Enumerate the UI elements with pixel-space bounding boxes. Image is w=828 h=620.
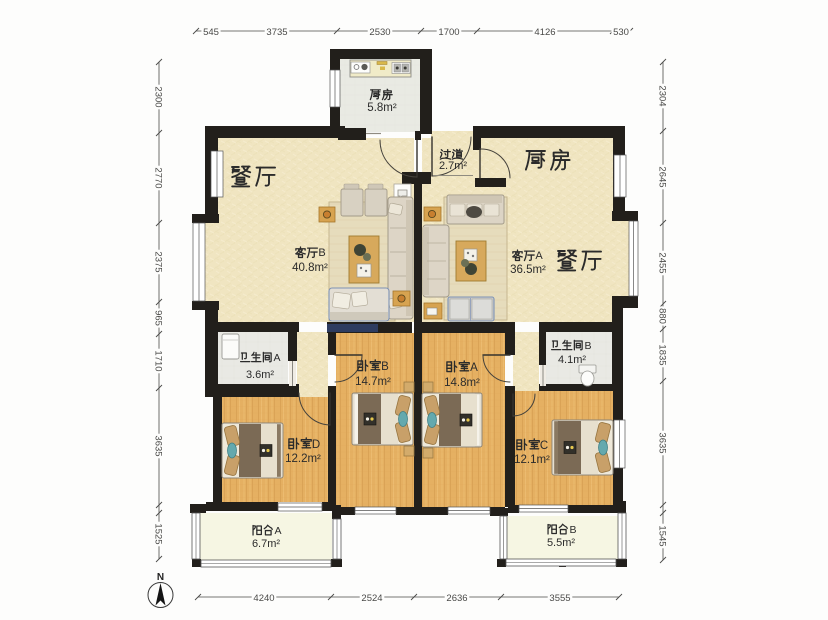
svg-text:4.1m²: 4.1m² (558, 354, 586, 366)
svg-text:14.7m²: 14.7m² (355, 376, 391, 388)
svg-text:2645: 2645 (657, 166, 668, 187)
svg-text:4240: 4240 (253, 593, 274, 604)
svg-text:B: B (318, 247, 325, 259)
svg-text:965: 965 (153, 310, 164, 326)
svg-text:12.2m²: 12.2m² (285, 453, 321, 465)
svg-text:2375: 2375 (153, 251, 164, 272)
svg-text:1710: 1710 (153, 350, 164, 371)
svg-text:2636: 2636 (446, 593, 467, 604)
svg-text:2.7m²: 2.7m² (439, 160, 467, 172)
svg-text:2524: 2524 (361, 593, 382, 604)
svg-text:D: D (312, 439, 320, 451)
svg-text:545: 545 (203, 27, 219, 38)
svg-text:3635: 3635 (657, 432, 668, 453)
svg-text:5.8m²: 5.8m² (367, 102, 397, 114)
svg-text:A: A (274, 525, 281, 537)
svg-text:B: B (584, 340, 591, 352)
svg-text:3.6m²: 3.6m² (246, 369, 274, 381)
svg-text:3735: 3735 (266, 27, 287, 38)
svg-text:2304: 2304 (657, 85, 668, 106)
svg-text:6.7m²: 6.7m² (252, 538, 280, 550)
svg-text:36.5m²: 36.5m² (510, 264, 546, 276)
svg-text:1835: 1835 (657, 344, 668, 365)
svg-text:N: N (157, 572, 164, 583)
svg-text:A: A (273, 352, 280, 364)
svg-text:1525: 1525 (153, 523, 164, 544)
svg-text:3635: 3635 (153, 435, 164, 456)
svg-text:B: B (569, 524, 576, 536)
svg-text:C: C (540, 440, 548, 452)
svg-text:A: A (535, 250, 543, 262)
svg-text:B: B (381, 361, 389, 373)
svg-text:14.8m²: 14.8m² (444, 377, 480, 389)
svg-text:1700: 1700 (438, 27, 459, 38)
svg-text:2300: 2300 (153, 86, 164, 107)
svg-text:40.8m²: 40.8m² (292, 262, 328, 274)
svg-text:5.5m²: 5.5m² (547, 537, 575, 549)
svg-text:3555: 3555 (549, 593, 570, 604)
svg-text:880: 880 (657, 308, 668, 324)
svg-text:530: 530 (613, 27, 629, 38)
svg-text:1545: 1545 (657, 525, 668, 546)
svg-text:12.1m²: 12.1m² (514, 454, 550, 466)
svg-text:2770: 2770 (153, 167, 164, 188)
svg-text:2455: 2455 (657, 252, 668, 273)
svg-text:4126: 4126 (534, 27, 555, 38)
svg-text:2530: 2530 (369, 27, 390, 38)
svg-text:A: A (470, 362, 478, 374)
